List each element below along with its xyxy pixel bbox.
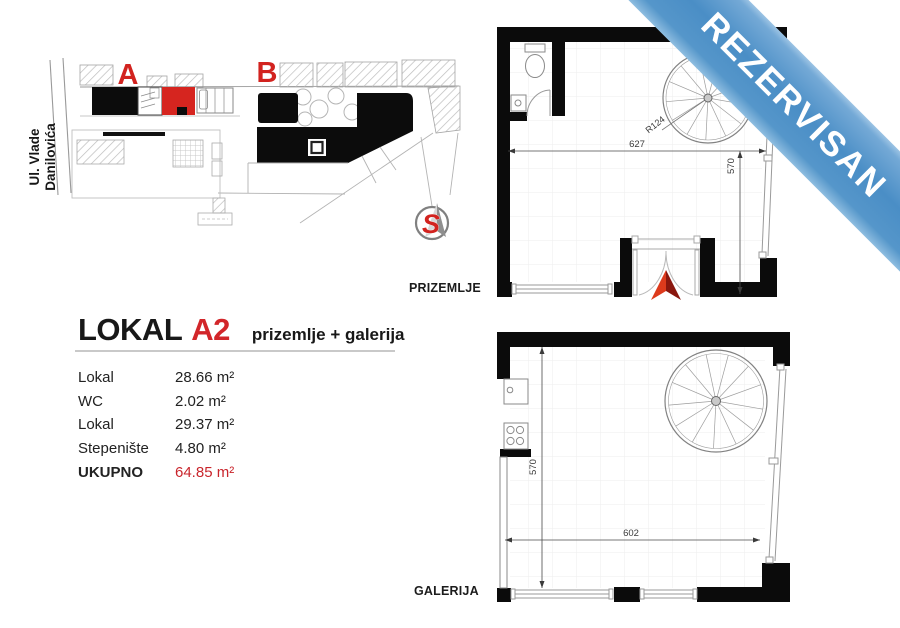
title-subtitle: prizemlje + galerija xyxy=(252,325,405,345)
title-divider xyxy=(75,350,395,352)
building-b xyxy=(257,60,460,163)
galerija-caption: GALERIJA xyxy=(414,584,479,598)
area-row: Lokal 29.37 m² xyxy=(78,413,313,437)
brochure-page: A B S Ul. Vlade Danilovića LOKAL A2 priz… xyxy=(0,0,900,628)
svg-text:602: 602 xyxy=(623,528,639,539)
area-table: Lokal 28.66 m² WC 2.02 m² Lokal 29.37 m²… xyxy=(78,366,313,484)
area-row: Lokal 28.66 m² xyxy=(78,366,313,390)
parking-strip xyxy=(197,88,233,113)
area-row: Stepenište 4.80 m² xyxy=(78,437,313,461)
area-total-row: UKUPNO 64.85 m² xyxy=(78,460,313,484)
floor-plan-galerija: 570 602 xyxy=(488,325,794,610)
title-prefix: LOKAL xyxy=(78,312,182,348)
compass-label: S xyxy=(422,209,440,239)
street-label: Ul. Vlade Danilovića xyxy=(25,82,61,232)
thin-wall xyxy=(500,457,507,588)
title-code: A2 xyxy=(191,312,230,348)
prizemlje-caption: PRIZEMLJE xyxy=(409,281,481,295)
svg-text:570: 570 xyxy=(528,459,539,475)
trees xyxy=(295,88,360,126)
unit-title: LOKAL A2 prizemlje + galerija xyxy=(78,312,405,348)
svg-text:627: 627 xyxy=(629,139,645,150)
building-a-label: A xyxy=(118,59,139,91)
compass-icon: S xyxy=(416,137,448,239)
lower-parcel xyxy=(72,130,232,225)
svg-text:570: 570 xyxy=(726,158,737,174)
site-plan: A B S xyxy=(0,0,480,312)
building-b-label: B xyxy=(257,57,278,89)
area-row: WC 2.02 m² xyxy=(78,390,313,414)
